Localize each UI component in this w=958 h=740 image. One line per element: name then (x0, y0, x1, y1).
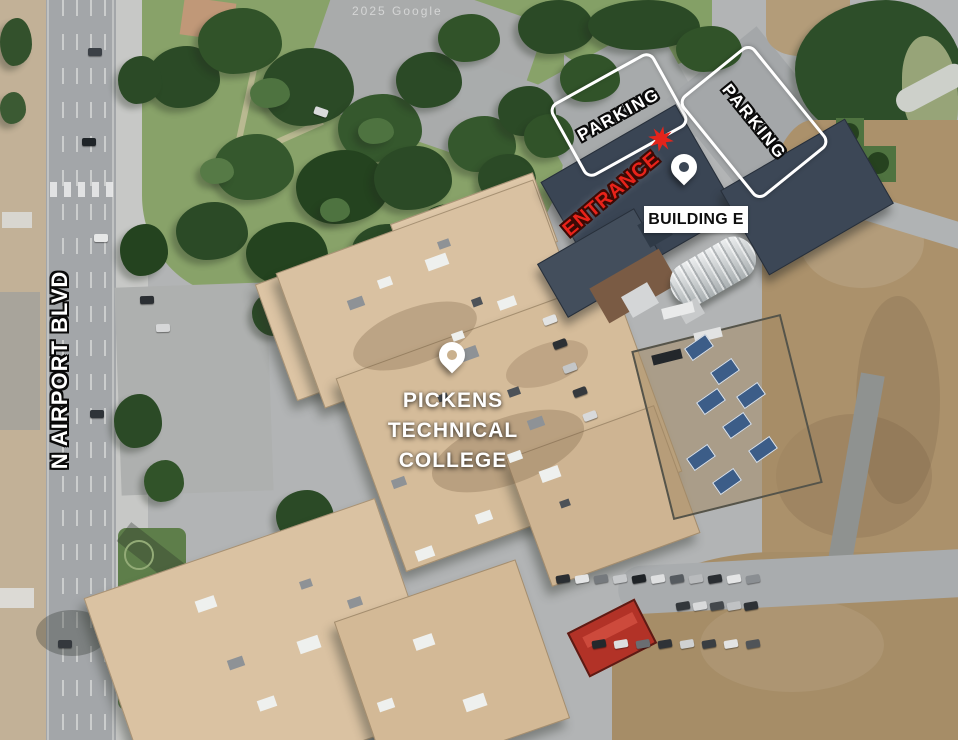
tree-highlight (320, 198, 350, 222)
imagery-watermark: 2025 Google (352, 4, 443, 18)
lawn-circle (124, 540, 154, 570)
building-e-pin-icon (671, 154, 697, 180)
street-name-label: N AIRPORT BLVD (47, 271, 73, 470)
parked-car (593, 574, 608, 584)
crosswalk (50, 182, 114, 197)
pin-head (434, 337, 471, 374)
parked-car (574, 574, 589, 584)
tree (374, 146, 452, 210)
tree (198, 8, 282, 74)
tree (518, 0, 594, 54)
satellite-map: N AIRPORT BLVD PARKING PARKING ENTRANCE … (0, 0, 958, 740)
tree-highlight (250, 78, 290, 108)
tree-highlight (358, 118, 394, 144)
tree (118, 56, 162, 104)
tree (144, 460, 184, 502)
parked-car (555, 574, 570, 584)
tree (0, 18, 32, 66)
parking-zone-b-label: PARKING (718, 80, 791, 163)
tree-highlight (200, 158, 234, 184)
tree (176, 202, 248, 260)
gravel-patch (0, 292, 40, 430)
college-name-line2: TECHNICAL (383, 416, 523, 446)
parked-car (156, 324, 170, 332)
tree (438, 14, 500, 62)
college-name-label: PICKENS TECHNICAL COLLEGE (383, 386, 523, 476)
pin-hole (677, 160, 691, 174)
parked-car (88, 48, 102, 56)
parked-car (58, 640, 72, 648)
tree (120, 224, 168, 276)
college-name-line3: COLLEGE (383, 446, 523, 476)
small-structure (0, 588, 34, 608)
small-structure (2, 212, 32, 228)
college-name-line1: PICKENS (383, 386, 523, 416)
tree (114, 394, 162, 448)
tree (0, 92, 26, 124)
pin-hole (445, 348, 459, 362)
parked-car (90, 410, 104, 418)
parked-car (94, 234, 108, 242)
building-e-label: BUILDING E (644, 206, 748, 233)
tree (396, 52, 462, 108)
parked-car (140, 296, 154, 304)
pin-head (666, 149, 703, 186)
parked-car (82, 138, 96, 146)
parking-lot-west (114, 282, 273, 495)
college-pin-icon (439, 342, 465, 368)
